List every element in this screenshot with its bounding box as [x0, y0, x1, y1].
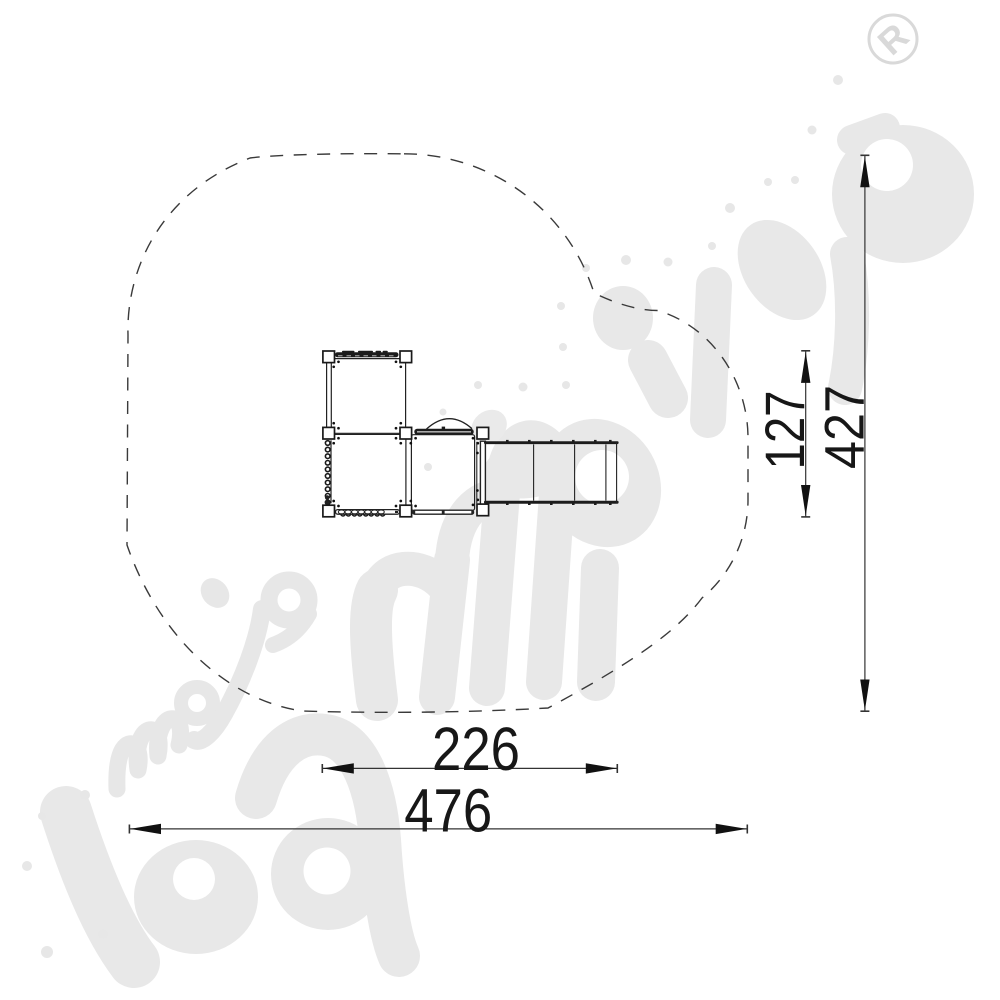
svg-text:427: 427 — [813, 385, 876, 469]
svg-text:226: 226 — [432, 715, 520, 783]
svg-text:127: 127 — [753, 391, 816, 470]
svg-text:476: 476 — [404, 777, 492, 845]
